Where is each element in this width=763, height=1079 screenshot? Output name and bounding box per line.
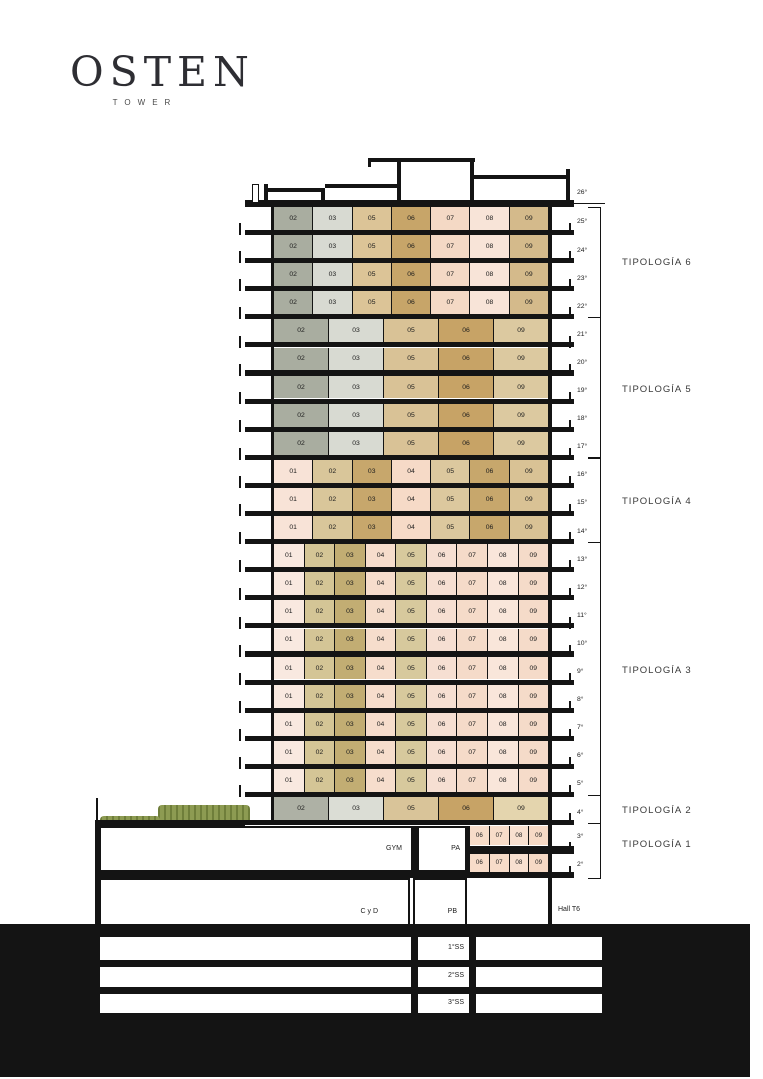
unit-cell-02: 02: [305, 544, 336, 567]
balcony-tick-left: [239, 420, 241, 432]
typology-bracket-cap: [588, 542, 601, 543]
unit-cell-05: 05: [396, 741, 427, 764]
balcony-tick-right: [569, 504, 571, 516]
parapet-wall: [321, 188, 326, 203]
floor-row-24°: 02030506070809: [274, 235, 548, 258]
unit-cell-08: 08: [488, 544, 519, 567]
balcony-tick-right: [569, 813, 571, 825]
unit-cell-07: 07: [431, 291, 470, 314]
basement-room: [475, 936, 603, 961]
unit-cell-04: 04: [366, 769, 397, 792]
balcony-tick-right: [569, 392, 571, 404]
balcony-tick-left: [239, 729, 241, 741]
floor-row-10°: 010203040506070809: [274, 629, 548, 652]
floor-row-21°: 0203050609: [274, 319, 548, 342]
unit-cell-07: 07: [431, 207, 470, 230]
unit-cell-04: 04: [366, 544, 397, 567]
unit-cell-07: 07: [457, 741, 488, 764]
unit-cell-06: 06: [427, 713, 458, 736]
floor-label-18°: 18°: [577, 415, 587, 422]
balcony-tick-left: [239, 532, 241, 544]
unit-cell-02: 02: [305, 685, 336, 708]
typology-label: TIPOLOGÍA 5: [622, 384, 692, 395]
floor-label-10°: 10°: [577, 640, 587, 647]
unit-cell-05: 05: [384, 319, 439, 342]
floor-label-13°: 13°: [577, 556, 587, 563]
unit-cell-05: 05: [396, 713, 427, 736]
unit-cell-05: 05: [384, 432, 439, 455]
floor-row-22°: 02030506070809: [274, 291, 548, 314]
unit-cell-02: 02: [305, 629, 336, 652]
floor-label-19°: 19°: [577, 387, 587, 394]
unit-cell-03: 03: [335, 741, 366, 764]
unit-cell-06: 06: [427, 685, 458, 708]
floor-row-25°: 02030506070809: [274, 207, 548, 230]
unit-cell-04: 04: [366, 685, 397, 708]
unit-cell-06: 06: [427, 657, 458, 680]
unit-cell-05: 05: [431, 460, 470, 483]
unit-cell-01: 01: [274, 600, 305, 623]
balcony-tick-left: [239, 504, 241, 516]
floor-row-14°: 01020304050609: [274, 516, 548, 539]
unit-cell-03: 03: [353, 460, 392, 483]
unit-cell-09: 09: [529, 854, 548, 873]
unit-cell-01: 01: [274, 460, 313, 483]
balcony-tick-right: [569, 757, 571, 769]
unit-cell-03: 03: [335, 629, 366, 652]
floor-row-2°: 06070809: [470, 854, 548, 873]
floor-label-4°: 4°: [577, 809, 584, 816]
unit-cell-06: 06: [439, 376, 494, 399]
unit-cell-02: 02: [313, 460, 352, 483]
floor-row-12°: 010203040506070809: [274, 572, 548, 595]
unit-cell-06: 06: [427, 572, 458, 595]
floor-label-3°: 3°: [577, 833, 584, 840]
floor-label-21°: 21°: [577, 331, 587, 338]
unit-cell-07: 07: [490, 826, 510, 845]
floor-label-15°: 15°: [577, 499, 587, 506]
unit-cell-03: 03: [353, 488, 392, 511]
unit-cell-08: 08: [488, 657, 519, 680]
unit-cell-02: 02: [274, 404, 329, 427]
unit-cell-06: 06: [470, 460, 509, 483]
unit-cell-05: 05: [396, 572, 427, 595]
unit-cell-06: 06: [427, 741, 458, 764]
balcony-tick-left: [239, 307, 241, 319]
unit-cell-05: 05: [384, 404, 439, 427]
unit-cell-03: 03: [335, 713, 366, 736]
floor-row-5°: 010203040506070809: [274, 769, 548, 792]
unit-cell-08: 08: [488, 741, 519, 764]
unit-cell-06: 06: [470, 516, 509, 539]
unit-cell-08: 08: [510, 854, 530, 873]
unit-cell-03: 03: [313, 207, 352, 230]
floor-row-6°: 010203040506070809: [274, 741, 548, 764]
unit-cell-06: 06: [439, 432, 494, 455]
unit-cell-05: 05: [353, 207, 392, 230]
unit-cell-07: 07: [490, 854, 510, 873]
unit-cell-06: 06: [470, 826, 490, 845]
building-section-drawing: OSTEN TOWER TIZADO TIZADO TIZADO 26° 020…: [0, 0, 763, 1079]
unit-cell-09: 09: [510, 291, 548, 314]
unit-cell-05: 05: [353, 235, 392, 258]
unit-cell-02: 02: [313, 488, 352, 511]
unit-cell-01: 01: [274, 685, 305, 708]
floor-label-2°: 2°: [577, 861, 584, 868]
floor-label-6°: 6°: [577, 752, 584, 759]
floor-row-8°: 010203040506070809: [274, 685, 548, 708]
podium-parapet: [96, 798, 98, 822]
balcony-tick-left: [239, 701, 241, 713]
floor-label-12°: 12°: [577, 584, 587, 591]
unit-cell-09: 09: [519, 685, 549, 708]
unit-cell-09: 09: [519, 600, 549, 623]
unit-cell-02: 02: [305, 572, 336, 595]
floor-row-4°: 0203050609: [274, 797, 548, 820]
unit-cell-03: 03: [353, 516, 392, 539]
unit-cell-09: 09: [519, 741, 549, 764]
floor-label-20°: 20°: [577, 359, 587, 366]
floor-label-14°: 14°: [577, 528, 587, 535]
unit-cell-09: 09: [510, 207, 548, 230]
unit-cell-03: 03: [335, 572, 366, 595]
unit-cell-05: 05: [384, 797, 439, 820]
unit-cell-05: 05: [396, 629, 427, 652]
balcony-tick-left: [239, 560, 241, 572]
unit-cell-09: 09: [494, 797, 548, 820]
balcony-tick-right: [569, 701, 571, 713]
balcony-tick-right: [569, 560, 571, 572]
floor-label-23°: 23°: [577, 275, 587, 282]
balcony-tick-right: [569, 729, 571, 741]
unit-cell-01: 01: [274, 629, 305, 652]
roof-box-top: [474, 175, 570, 179]
unit-cell-06: 06: [439, 319, 494, 342]
balcony-tick-right: [569, 420, 571, 432]
balcony-tick-left: [239, 588, 241, 600]
typology-bracket-cap: [588, 823, 601, 824]
unit-cell-08: 08: [488, 685, 519, 708]
unit-cell-09: 09: [519, 544, 549, 567]
floor-label-5°: 5°: [577, 780, 584, 787]
unit-cell-04: 04: [366, 657, 397, 680]
unit-cell-03: 03: [329, 376, 384, 399]
unit-cell-03: 03: [335, 769, 366, 792]
unit-cell-08: 08: [470, 263, 509, 286]
basement-room: [99, 993, 412, 1014]
floor-label-16°: 16°: [577, 471, 587, 478]
unit-cell-04: 04: [366, 572, 397, 595]
balcony-tick-right: [569, 223, 571, 235]
balcony-tick-left: [239, 448, 241, 460]
unit-cell-03: 03: [329, 348, 384, 371]
unit-cell-01: 01: [274, 741, 305, 764]
unit-cell-04: 04: [366, 741, 397, 764]
floor-row-7°: 010203040506070809: [274, 713, 548, 736]
balcony-tick-left: [239, 392, 241, 404]
unit-cell-08: 08: [488, 572, 519, 595]
roof-level-line: [574, 203, 605, 204]
unit-cell-03: 03: [329, 319, 384, 342]
unit-cell-05: 05: [396, 600, 427, 623]
unit-cell-06: 06: [427, 600, 458, 623]
cyd-label: C y D: [300, 908, 378, 915]
project-logo: OSTEN: [70, 48, 220, 96]
unit-cell-03: 03: [335, 657, 366, 680]
unit-cell-07: 07: [431, 263, 470, 286]
unit-cell-05: 05: [396, 685, 427, 708]
unit-cell-02: 02: [274, 319, 329, 342]
unit-cell-06: 06: [439, 348, 494, 371]
unit-cell-04: 04: [366, 629, 397, 652]
balcony-tick-right: [569, 476, 571, 488]
balcony-tick-right: [569, 364, 571, 376]
balcony-tick-left: [239, 785, 241, 797]
balcony-tick-right: [569, 532, 571, 544]
typology-bracket-cap: [588, 457, 601, 458]
balcony-tick-left: [239, 645, 241, 657]
unit-cell-09: 09: [510, 460, 548, 483]
unit-cell-06: 06: [427, 769, 458, 792]
unit-cell-06: 06: [392, 263, 431, 286]
basement-room: [475, 966, 603, 988]
floor-label-17°: 17°: [577, 443, 587, 450]
unit-cell-04: 04: [392, 488, 431, 511]
unit-cell-09: 09: [510, 235, 548, 258]
unit-cell-01: 01: [274, 488, 313, 511]
unit-cell-03: 03: [335, 685, 366, 708]
unit-cell-03: 03: [313, 263, 352, 286]
balcony-tick-right: [569, 785, 571, 797]
unit-cell-01: 01: [274, 713, 305, 736]
floor-row-20°: 0203050609: [274, 348, 548, 371]
balcony-tick-right: [569, 645, 571, 657]
unit-cell-05: 05: [353, 263, 392, 286]
balcony-tick-left: [239, 223, 241, 235]
unit-cell-04: 04: [392, 516, 431, 539]
unit-cell-02: 02: [305, 713, 336, 736]
unit-cell-03: 03: [335, 544, 366, 567]
machine-room-hook: [368, 158, 372, 167]
unit-cell-09: 09: [519, 657, 549, 680]
balcony-tick-right: [569, 673, 571, 685]
typology-bracket-cap: [588, 795, 601, 796]
roof-parapet-beam: [325, 184, 401, 188]
floor-slab: [467, 846, 574, 854]
parapet-beam: [267, 188, 325, 192]
typology-label: TIPOLOGÍA 6: [622, 257, 692, 268]
unit-cell-03: 03: [329, 797, 384, 820]
unit-cell-01: 01: [274, 657, 305, 680]
unit-cell-06: 06: [470, 488, 509, 511]
unit-cell-01: 01: [274, 769, 305, 792]
unit-cell-05: 05: [431, 488, 470, 511]
unit-cell-05: 05: [384, 348, 439, 371]
unit-cell-02: 02: [274, 235, 313, 258]
unit-cell-05: 05: [431, 516, 470, 539]
hall-label: Hall T6: [558, 906, 604, 913]
floor-label-7°: 7°: [577, 724, 584, 731]
unit-cell-04: 04: [366, 600, 397, 623]
unit-cell-09: 09: [519, 713, 549, 736]
pb-room: [413, 878, 467, 928]
unit-cell-05: 05: [353, 291, 392, 314]
unit-cell-05: 05: [396, 544, 427, 567]
unit-cell-08: 08: [470, 235, 509, 258]
roof-garden-strip: [100, 816, 160, 821]
balcony-tick-right: [569, 336, 571, 348]
floor-label-25°: 25°: [577, 218, 587, 225]
unit-cell-02: 02: [274, 207, 313, 230]
gym-label: GYM: [330, 845, 402, 852]
unit-cell-02: 02: [305, 600, 336, 623]
balcony-tick-right: [569, 448, 571, 460]
unit-cell-02: 02: [313, 516, 352, 539]
basement-room: [99, 966, 412, 988]
unit-cell-09: 09: [494, 432, 548, 455]
unit-cell-09: 09: [529, 826, 548, 845]
machine-room-wall: [470, 158, 474, 202]
unit-cell-04: 04: [392, 460, 431, 483]
unit-cell-09: 09: [510, 516, 548, 539]
unit-cell-07: 07: [457, 600, 488, 623]
cyd-room: [99, 878, 410, 928]
unit-cell-09: 09: [494, 348, 548, 371]
balcony-tick-right: [569, 279, 571, 291]
unit-cell-08: 08: [488, 629, 519, 652]
balcony-tick-right: [569, 617, 571, 629]
unit-cell-07: 07: [457, 685, 488, 708]
unit-cell-08: 08: [488, 713, 519, 736]
unit-cell-07: 07: [431, 235, 470, 258]
unit-cell-02: 02: [274, 797, 329, 820]
unit-cell-09: 09: [494, 319, 548, 342]
balcony-tick-right: [569, 307, 571, 319]
floor-row-18°: 0203050609: [274, 404, 548, 427]
unit-cell-06: 06: [392, 291, 431, 314]
floor-row-16°: 01020304050609: [274, 460, 548, 483]
balcony-tick-left: [239, 279, 241, 291]
unit-cell-03: 03: [335, 600, 366, 623]
unit-cell-09: 09: [519, 629, 549, 652]
unit-cell-03: 03: [313, 291, 352, 314]
unit-cell-04: 04: [366, 713, 397, 736]
unit-cell-02: 02: [305, 657, 336, 680]
roof-box-wall: [566, 169, 571, 203]
roof-slab: [245, 200, 574, 207]
basement-room: [99, 936, 412, 961]
floor-label-24°: 24°: [577, 247, 587, 254]
unit-cell-07: 07: [457, 629, 488, 652]
floor-row-13°: 010203040506070809: [274, 544, 548, 567]
floor-row-15°: 01020304050609: [274, 488, 548, 511]
machine-room-roof: [368, 158, 475, 162]
balcony-tick-left: [239, 476, 241, 488]
unit-cell-06: 06: [439, 404, 494, 427]
floor-row-17°: 0203050609: [274, 432, 548, 455]
floor-slab: [245, 820, 574, 825]
unit-cell-09: 09: [510, 488, 548, 511]
basement-label-3ss: 3°SS: [417, 999, 464, 1006]
pb-label: PB: [405, 908, 457, 915]
typology-label: TIPOLOGÍA 1: [622, 839, 692, 850]
unit-cell-02: 02: [305, 769, 336, 792]
unit-cell-06: 06: [439, 797, 494, 820]
unit-cell-08: 08: [510, 826, 530, 845]
typology-bracket-cap: [588, 207, 601, 208]
unit-cell-02: 02: [274, 376, 329, 399]
unit-cell-09: 09: [494, 376, 548, 399]
project-logo-subtitle: TOWER: [70, 98, 220, 107]
typology-bracket-cap: [588, 317, 601, 318]
balcony-tick-left: [239, 251, 241, 263]
typology-label: TIPOLOGÍA 2: [622, 805, 692, 816]
basement-room: [475, 993, 603, 1014]
pa-label: PA: [418, 845, 460, 852]
unit-cell-06: 06: [427, 629, 458, 652]
unit-cell-03: 03: [329, 404, 384, 427]
unit-cell-09: 09: [510, 263, 548, 286]
unit-cell-01: 01: [274, 516, 313, 539]
balcony-tick-right: [569, 251, 571, 263]
unit-cell-05: 05: [396, 657, 427, 680]
unit-cell-06: 06: [427, 544, 458, 567]
unit-cell-02: 02: [274, 432, 329, 455]
balcony-tick-left: [239, 757, 241, 769]
unit-cell-08: 08: [488, 600, 519, 623]
unit-cell-07: 07: [457, 769, 488, 792]
floor-row-3°: 06070809: [470, 826, 548, 845]
unit-cell-07: 07: [457, 544, 488, 567]
unit-cell-07: 07: [457, 713, 488, 736]
basement-label-2ss: 2°SS: [417, 972, 464, 979]
balcony-tick-right: [569, 588, 571, 600]
unit-cell-02: 02: [305, 741, 336, 764]
floor-row-11°: 010203040506070809: [274, 600, 548, 623]
unit-cell-06: 06: [470, 854, 490, 873]
balcony-tick-left: [239, 336, 241, 348]
unit-cell-02: 02: [274, 291, 313, 314]
unit-cell-08: 08: [470, 291, 509, 314]
basement-label-1ss: 1°SS: [417, 944, 464, 951]
roof-garden-hedge: [158, 805, 250, 820]
unit-cell-09: 09: [494, 404, 548, 427]
wall: [413, 826, 417, 872]
unit-cell-06: 06: [392, 235, 431, 258]
unit-cell-06: 06: [392, 207, 431, 230]
unit-cell-03: 03: [329, 432, 384, 455]
floor-label-8°: 8°: [577, 696, 584, 703]
floor-row-9°: 010203040506070809: [274, 657, 548, 680]
unit-cell-02: 02: [274, 348, 329, 371]
balcony-tick-left: [239, 673, 241, 685]
floor-label-22°: 22°: [577, 303, 587, 310]
floor-row-19°: 0203050609: [274, 376, 548, 399]
unit-cell-09: 09: [519, 769, 549, 792]
unit-cell-05: 05: [384, 376, 439, 399]
machine-room-wall: [397, 158, 401, 202]
floor-label-26: 26°: [577, 189, 587, 196]
unit-cell-07: 07: [457, 572, 488, 595]
typology-label: TIPOLOGÍA 4: [622, 496, 692, 507]
unit-cell-08: 08: [470, 207, 509, 230]
unit-cell-07: 07: [457, 657, 488, 680]
wall: [467, 826, 470, 878]
unit-cell-03: 03: [313, 235, 352, 258]
floor-label-9°: 9°: [577, 668, 584, 675]
parapet-line: [267, 200, 325, 201]
unit-cell-01: 01: [274, 544, 305, 567]
